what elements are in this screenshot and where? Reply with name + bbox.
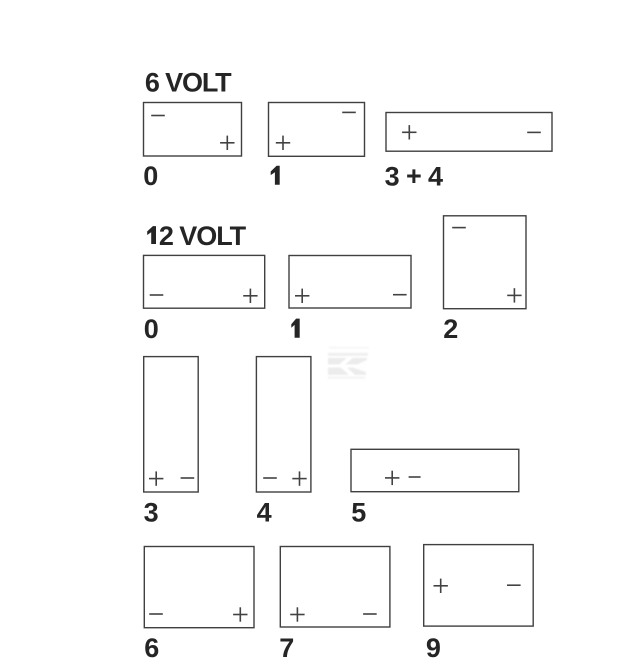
svg-text:0: 0 [144, 314, 159, 344]
svg-text:6 VOLT: 6 VOLT [145, 68, 232, 98]
svg-text:2 VOLT: 2 VOLT [159, 221, 247, 251]
svg-text:0: 0 [143, 161, 158, 191]
svg-text:5: 5 [351, 497, 366, 527]
svg-text:+: + [406, 161, 422, 191]
svg-text:2: 2 [443, 314, 458, 344]
svg-text:4: 4 [428, 161, 443, 191]
svg-text:9: 9 [426, 633, 441, 663]
svg-text:3: 3 [144, 497, 159, 527]
svg-text:3: 3 [385, 161, 400, 191]
svg-text:6: 6 [144, 633, 159, 663]
svg-text:4: 4 [257, 497, 272, 527]
svg-text:7: 7 [279, 633, 294, 663]
